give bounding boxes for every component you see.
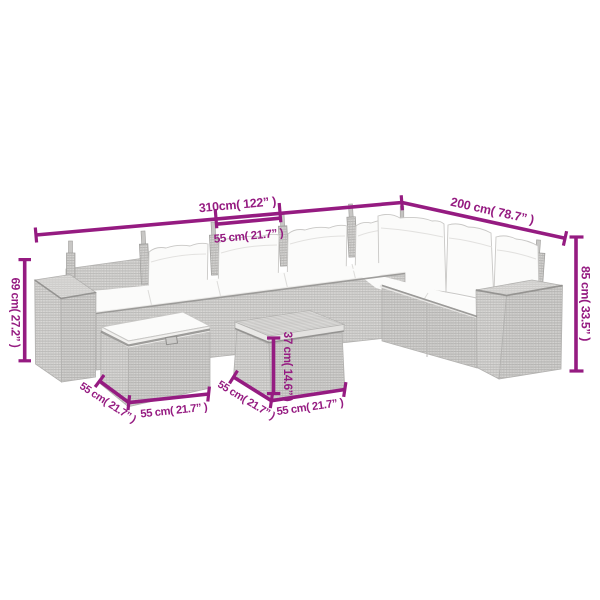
svg-text:85 cm( 33.5” ): 85 cm( 33.5” ) [578, 266, 592, 341]
svg-text:69 cm( 27.2” ): 69 cm( 27.2” ) [9, 278, 22, 348]
svg-text:37 cm( 14.6” ): 37 cm( 14.6” ) [281, 332, 294, 402]
